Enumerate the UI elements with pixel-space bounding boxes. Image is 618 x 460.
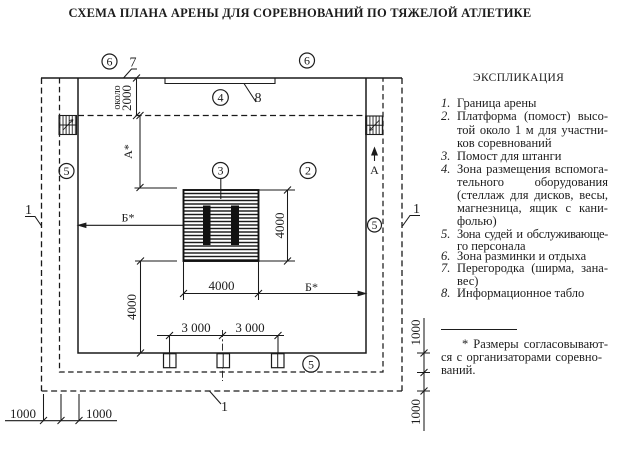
svg-text:8: 8 bbox=[255, 91, 262, 106]
svg-text:6: 6 bbox=[107, 55, 113, 69]
svg-text:1000: 1000 bbox=[408, 399, 423, 425]
svg-text:5: 5 bbox=[372, 220, 378, 232]
svg-text:3 000: 3 000 bbox=[181, 320, 210, 335]
svg-text:1: 1 bbox=[25, 203, 32, 218]
svg-text:1: 1 bbox=[221, 400, 228, 415]
svg-text:4000: 4000 bbox=[209, 278, 235, 293]
svg-text:7: 7 bbox=[130, 56, 137, 71]
svg-text:1000: 1000 bbox=[10, 406, 36, 421]
svg-text:1000: 1000 bbox=[408, 320, 423, 346]
svg-text:А*: А* bbox=[121, 144, 135, 159]
svg-text:2000: 2000 bbox=[119, 85, 134, 111]
svg-text:5: 5 bbox=[308, 357, 314, 371]
svg-text:3 000: 3 000 bbox=[235, 320, 264, 335]
svg-text:2: 2 bbox=[305, 164, 311, 178]
svg-text:4: 4 bbox=[218, 91, 224, 105]
svg-text:5: 5 bbox=[64, 164, 70, 178]
svg-text:4000: 4000 bbox=[124, 294, 139, 320]
svg-text:1: 1 bbox=[413, 202, 420, 217]
svg-text:3: 3 bbox=[218, 164, 224, 178]
svg-text:1000: 1000 bbox=[86, 406, 112, 421]
svg-text:6: 6 bbox=[304, 54, 310, 68]
svg-text:А: А bbox=[370, 163, 379, 177]
svg-text:Б*: Б* bbox=[122, 211, 135, 225]
svg-text:4000: 4000 bbox=[272, 213, 287, 239]
svg-text:Б*: Б* bbox=[305, 280, 318, 294]
